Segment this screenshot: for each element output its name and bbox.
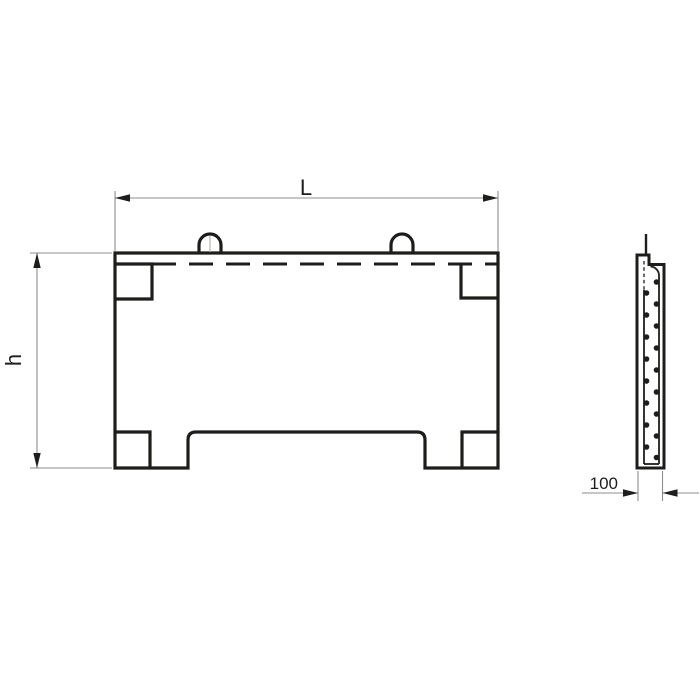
arrowhead-top [33, 253, 40, 268]
rebar-dot [644, 422, 650, 428]
rebar-dot [654, 411, 660, 417]
dimension-label-h: h [1, 354, 26, 366]
rebar-dot [654, 433, 660, 439]
rebar-dot [644, 356, 650, 362]
rebar-dot [654, 455, 660, 461]
rebar-dot [654, 323, 660, 329]
corner-block-bottom-right [462, 432, 498, 468]
rebar-dot [644, 400, 650, 406]
rebar-dots [644, 279, 660, 460]
dimension-height: h [1, 253, 112, 468]
corner-block-top-right [461, 265, 498, 298]
rebar-dot [644, 444, 650, 450]
arrowhead-right [663, 489, 678, 496]
rebar-dot [654, 389, 660, 395]
inner-corner-arc [651, 267, 660, 277]
front-view [115, 234, 498, 468]
panel-technical-drawing: L h [0, 0, 700, 700]
arrowhead-right [483, 194, 498, 201]
side-view [637, 234, 664, 468]
arrowhead-left [623, 489, 638, 496]
drawing-canvas: L h [0, 0, 700, 700]
dimension-length: L [115, 175, 498, 251]
rebar-dot [644, 290, 650, 296]
lifting-loop-right [391, 234, 413, 253]
corner-block-top-left [115, 264, 152, 299]
dimension-label-100: 100 [590, 474, 618, 493]
rebar-dot [644, 378, 650, 384]
arrowhead-left [115, 194, 130, 201]
dimension-label-L: L [300, 175, 312, 200]
rebar-dot [654, 345, 660, 351]
rebar-dot [654, 279, 660, 285]
side-outline [637, 255, 664, 468]
panel-outline [115, 253, 498, 468]
rebar-dot [654, 301, 660, 307]
rebar-dot [644, 334, 650, 340]
corner-block-bottom-left [115, 432, 150, 468]
arrowhead-bottom [33, 453, 40, 468]
rebar-dot [644, 312, 650, 318]
dimension-thickness: 100 [582, 471, 699, 501]
rebar-dot [654, 367, 660, 373]
